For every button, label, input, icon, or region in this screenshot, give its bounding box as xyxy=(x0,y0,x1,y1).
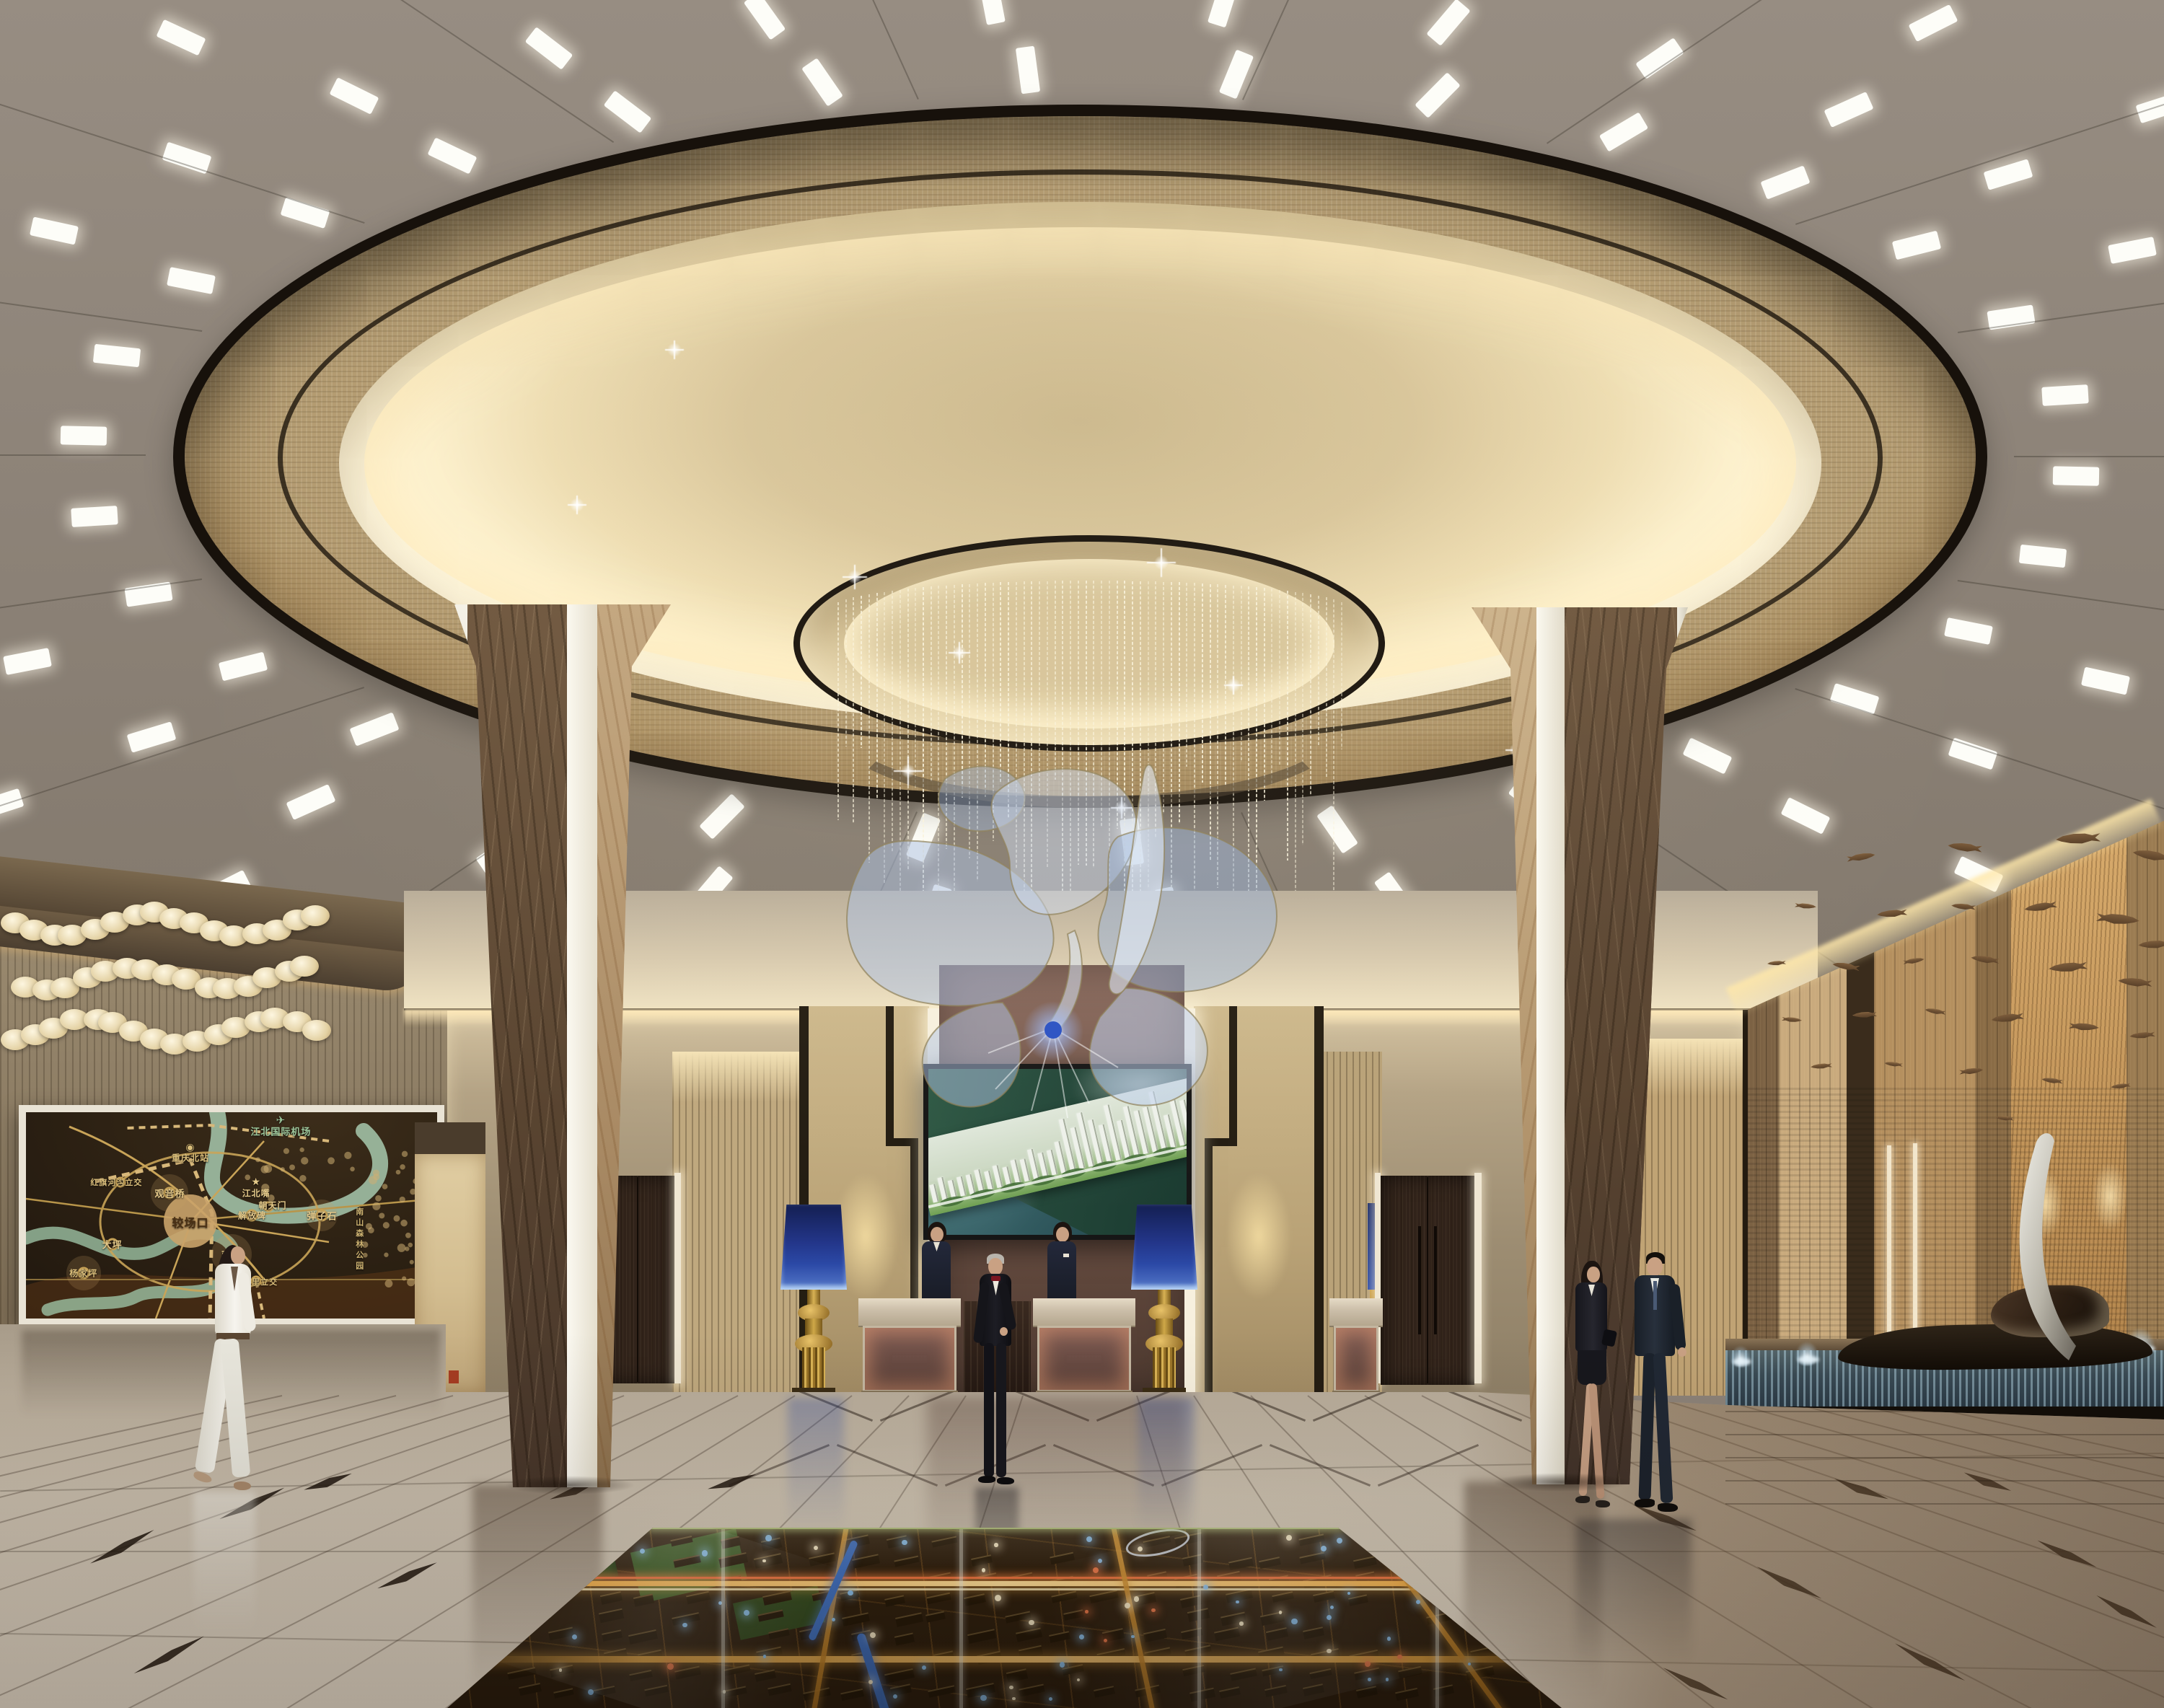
hand xyxy=(1000,1327,1008,1336)
name-badge xyxy=(1063,1254,1069,1257)
face xyxy=(1587,1267,1600,1282)
person-reflection xyxy=(1576,1519,1692,1663)
recessed-light-slot xyxy=(1761,166,1811,200)
splash-foam xyxy=(1798,1356,1819,1363)
recessed-light-slot xyxy=(1427,0,1471,45)
slat-wall-left xyxy=(672,1052,802,1396)
recessed-light-slot xyxy=(71,506,118,527)
recessed-light-slot xyxy=(428,137,478,174)
face xyxy=(988,1258,1003,1275)
map-label: 江北嘴 xyxy=(242,1187,270,1199)
column-stripe-white-b xyxy=(567,604,597,1487)
recessed-light-slot xyxy=(3,648,52,675)
glass-disc xyxy=(301,905,330,926)
recessed-light-slot xyxy=(29,217,78,245)
map-label: 观音桥 xyxy=(154,1186,185,1199)
recessed-light-slot xyxy=(61,426,107,445)
recessed-light-slot xyxy=(1682,738,1732,775)
pillar-uplight-right xyxy=(1212,1125,1306,1327)
tower xyxy=(956,1176,966,1197)
tower xyxy=(974,1169,985,1192)
face xyxy=(1056,1227,1069,1242)
heel-back xyxy=(234,1482,251,1490)
column-base-shadow xyxy=(1493,1473,1630,1492)
wood-spotlight-2 xyxy=(2085,1160,2135,1282)
lamp-neck xyxy=(1158,1290,1171,1306)
face xyxy=(1647,1257,1663,1276)
ceiling-panel-seam xyxy=(37,0,613,143)
face xyxy=(931,1227,944,1242)
disc-chandelier xyxy=(0,906,339,1101)
left-door-split xyxy=(637,1177,638,1382)
map-label: 重庆北站 xyxy=(172,1151,209,1163)
shoe-b xyxy=(997,1477,1014,1484)
glass-disc xyxy=(302,1020,331,1041)
column-base-shadow xyxy=(505,1476,635,1494)
person-concierge xyxy=(969,1254,1020,1492)
recessed-light-slot xyxy=(1016,46,1040,94)
hand xyxy=(1678,1347,1686,1357)
person-reflection xyxy=(193,1492,255,1636)
recessed-light-slot xyxy=(1984,159,2033,190)
map-icon-train-station: ◉ xyxy=(185,1142,195,1153)
ceiling-panel-seam xyxy=(2014,456,2164,457)
tower xyxy=(937,1177,948,1200)
lobby-scene: 江北国际机场✈重庆北站◉红旗河沟立交观音桥江北嘴★朝天门解放碑弹子石较场口大坪南… xyxy=(0,0,2164,1708)
recessed-light-slot xyxy=(349,712,399,746)
pump-a xyxy=(1575,1496,1590,1503)
tower xyxy=(965,1174,975,1194)
map-label: 较场口 xyxy=(172,1213,208,1231)
floor-accent-sliver xyxy=(89,1526,156,1570)
reception-desk-counter xyxy=(1033,1298,1135,1326)
recessed-light-slot xyxy=(167,267,216,294)
recessed-light-slot xyxy=(1944,617,1993,645)
clutch xyxy=(1601,1329,1617,1347)
shoe-a xyxy=(1635,1499,1655,1507)
map-label: 红旗河沟立交 xyxy=(90,1176,142,1188)
tower xyxy=(1019,1159,1030,1182)
recessed-light-slot xyxy=(2019,545,2067,568)
trouser-back xyxy=(221,1338,251,1477)
recessed-light-slot xyxy=(1830,683,1880,715)
trouser-leg-a xyxy=(984,1343,994,1477)
recessed-light-slot xyxy=(2041,384,2088,406)
recessed-light-slot xyxy=(2081,666,2130,695)
trouser-leg-b xyxy=(996,1343,1006,1477)
tower xyxy=(929,1184,938,1202)
door-frame-light-left-b xyxy=(674,1173,681,1383)
corridor-object-red xyxy=(449,1370,459,1383)
map-icon-airplane: ✈ xyxy=(276,1114,286,1127)
recessed-light-slot xyxy=(1219,49,1254,99)
face xyxy=(231,1246,245,1264)
tower xyxy=(992,1165,1003,1188)
map-icon-star: ★ xyxy=(251,1176,261,1188)
corridor-lintel xyxy=(415,1122,485,1155)
recessed-light-slot xyxy=(744,0,786,40)
map-label: 南山森林公园 xyxy=(353,1207,365,1272)
recessed-light-slot xyxy=(1908,4,1958,42)
recessed-light-slot xyxy=(329,77,379,115)
map-label: 弹子石 xyxy=(307,1209,337,1223)
recessed-light-slot xyxy=(1208,0,1239,27)
tie xyxy=(1653,1281,1657,1310)
recessed-light-slot xyxy=(286,784,335,820)
leg-a xyxy=(1638,1353,1655,1500)
recessed-light-slot xyxy=(2053,467,2100,486)
reception-desk-front xyxy=(863,1326,956,1392)
recessed-light-slot xyxy=(92,344,140,367)
floor-accent-sliver xyxy=(133,1632,206,1679)
sail-sculpture xyxy=(1974,1122,2082,1368)
person-visitor-man xyxy=(1622,1252,1691,1529)
right-door-handles xyxy=(1418,1226,1437,1334)
ceiling-panel-seam xyxy=(1242,0,1443,100)
pump-b xyxy=(1596,1500,1610,1507)
recessed-light-slot xyxy=(1598,112,1648,151)
person-walking-woman xyxy=(180,1241,274,1497)
reception-desk-counter xyxy=(1329,1298,1383,1326)
ceiling-panel-seam xyxy=(0,454,146,456)
recessed-light-slot xyxy=(1781,797,1831,835)
glass-disc xyxy=(290,956,319,977)
door-frame-light-right-b xyxy=(1474,1173,1482,1383)
recessed-light-slot xyxy=(219,651,268,681)
tower xyxy=(1010,1160,1021,1184)
map-label: 解放碑 xyxy=(238,1210,266,1222)
reception-desk-front xyxy=(1334,1326,1378,1392)
tower xyxy=(984,1171,994,1190)
lit-slot-right-wall-a xyxy=(1887,1145,1891,1362)
skirt xyxy=(1578,1350,1606,1385)
reception-desk-front xyxy=(1037,1326,1131,1392)
map-label: 大坪 xyxy=(102,1238,123,1251)
splash-foam xyxy=(1733,1358,1751,1365)
lamp-reflection xyxy=(1138,1398,1195,1535)
shoe-b xyxy=(1658,1503,1678,1512)
lamp-neck xyxy=(807,1290,820,1306)
recessed-light-slot xyxy=(801,58,843,107)
table-lamp-shade xyxy=(1131,1205,1197,1290)
leg-b xyxy=(1653,1353,1673,1504)
recessed-light-slot xyxy=(699,793,745,840)
floor-plank-lines xyxy=(1725,1411,2164,1512)
blue-ribbon-sculpture xyxy=(815,750,1320,1125)
recessed-light-slot xyxy=(2108,237,2157,264)
ceiling-panel-seam xyxy=(0,178,203,333)
recessed-light-slot xyxy=(603,90,651,133)
recessed-light-slot xyxy=(979,0,1006,25)
recessed-light-slot xyxy=(126,721,176,752)
recessed-light-slot xyxy=(1948,738,1998,770)
recessed-light-slot xyxy=(1892,231,1941,260)
recessed-light-slot xyxy=(162,141,211,174)
slat-cove-glow-left xyxy=(672,1052,802,1102)
recessed-light-slot xyxy=(280,197,330,229)
tower xyxy=(1037,1153,1048,1178)
recessed-light-slot xyxy=(1636,38,1684,79)
reception-desk-counter xyxy=(858,1298,961,1326)
tower xyxy=(1046,1149,1057,1175)
recessed-light-slot xyxy=(1415,72,1461,118)
lamp-column xyxy=(802,1347,825,1389)
lamp-column xyxy=(1153,1347,1176,1389)
shoe-a xyxy=(978,1476,995,1483)
ceiling-panel-seam xyxy=(1957,580,2164,734)
recessed-light-slot xyxy=(525,27,573,70)
recessed-light-slot xyxy=(1824,92,1874,128)
lamp-reflection xyxy=(788,1398,844,1535)
map-label: 杨家坪 xyxy=(69,1267,97,1280)
table-lamp-shade xyxy=(780,1205,847,1290)
recessed-light-slot xyxy=(156,19,206,56)
red-bowtie xyxy=(991,1276,1000,1281)
